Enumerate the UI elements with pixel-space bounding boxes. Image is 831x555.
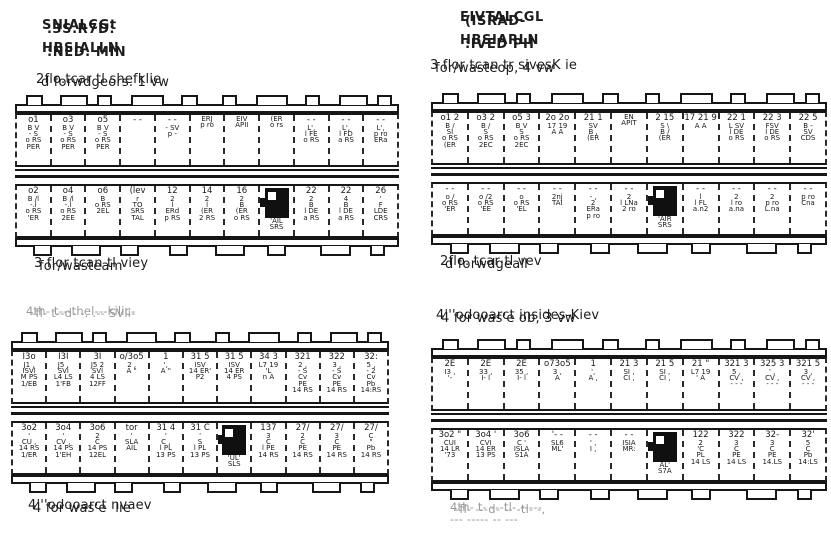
seat-cell: 31 C'Sl PL13 PS (182, 423, 216, 473)
lower-right-caption-above: 4'''odooarct insides-Kiev4 for was'e ob,… (436, 310, 599, 324)
seat-cell: 3o4'CV ,14 PS1'EH (45, 423, 79, 473)
text-line: d forwdgeors. 1 vw (41, 77, 169, 88)
seat-label-line: 14 LS (684, 459, 718, 465)
seat-cell: o73o53 ,A (538, 359, 574, 409)
coupler-tab (256, 95, 288, 105)
seat-cell: 3IJ5 2SVl4 LS12FF (79, 352, 113, 402)
seat-cell: ERJp ro (189, 115, 224, 165)
coupler-tab (645, 93, 661, 103)
coupler-tabs-bottom (434, 245, 824, 255)
seat-label-line: APIT (612, 120, 646, 126)
coupler-tabs-bottom (14, 484, 386, 494)
seat-cell: 31 4'C ,l PL13 PS (148, 423, 182, 473)
seat-label-line: p ro (576, 213, 610, 219)
aisle-divider (15, 169, 399, 184)
seat-cell: 1',A " (148, 352, 182, 402)
seat-label-line: P2 (184, 374, 216, 380)
upper-left-caption-above: 2flo.tcar tl shefklied forwdgeors. 1 vw (36, 74, 169, 88)
seat-label-line: 'ER (17, 215, 50, 221)
seat-label-line: PER (86, 144, 119, 150)
coupler-tab (450, 490, 470, 500)
seat-label-line: 14 RS (355, 452, 387, 458)
seat-cell: - -- ,2ERap ro (574, 184, 610, 234)
scanned-seatmap-page: SNIALCGt.3S.R7D:HBSIALLN:NED. MIN 2flo.t… (0, 0, 831, 555)
seat-row-upper: 2EI3 ,'-2E33 ,I- l2E35 ,I- lo73o53 ,A1',… (431, 357, 827, 411)
seat-cell: 321 35 ,CV ,- - - (718, 359, 754, 409)
seat-label-line: SLS (218, 461, 250, 467)
aisle-line (15, 169, 399, 171)
coupler-tab (539, 490, 559, 500)
coupler-tab (680, 93, 713, 103)
seat-cell: 1',A , (574, 359, 610, 409)
seat-label-line: 14 RS (287, 387, 319, 393)
seat-cell: o1B V- So RSPER (17, 115, 50, 165)
text-line: 4 for was'e ob, 3 vw (441, 313, 599, 324)
seat-cell: '- -SL6ML' (538, 430, 574, 480)
seat-cell: 22 5B -SVCDS (789, 113, 825, 163)
seat-label-line: A " (150, 368, 182, 374)
seat-label-line: - - - (720, 381, 754, 387)
seat-label-line: o RS (755, 135, 789, 141)
coupler-tab (489, 490, 520, 500)
coupler-tab (66, 483, 96, 493)
seat-label-line: a.na (720, 206, 754, 212)
seat-cell: o5 3B VSo RS2EC (503, 113, 539, 163)
seat-label-line: 2EL (86, 208, 119, 214)
seat-cell: 31 5ISV14 ER'P2 (182, 352, 216, 402)
coupler-tab (174, 332, 191, 342)
seat-label-line: PER (52, 144, 85, 150)
seat-row-lower: 3o2'CU ,14 RS1/ER3o4'CV ,14 PS1'EH3o62C1… (11, 421, 389, 475)
frame-rail-top (431, 102, 827, 111)
seat-cell: 17 21 9A A (682, 113, 718, 163)
seat-label-line: A A (540, 129, 574, 135)
coupler-tab (215, 246, 245, 256)
seat-cell: 2EI3 ,'- (433, 359, 467, 409)
seat-cell: 224Bl DEa RS (328, 186, 363, 236)
seat-label-line: 'EL (505, 206, 539, 212)
seat-label-line: A (540, 375, 574, 381)
seat-label-line: ML' (540, 446, 574, 452)
seat-cell: 1373Cl PE14 RS (250, 423, 284, 473)
seat-cell: 1222'CPL14 LS (682, 430, 718, 480)
seat-label-line: 14 RS (321, 387, 353, 393)
seat-cell: 21 3SI ,CI , (610, 359, 646, 409)
aisle-line (11, 406, 389, 408)
seat-cell: 2o 2o17 19A A (538, 113, 574, 163)
seat-label-line: TAL (121, 215, 154, 221)
seat-label-line: 12FF (81, 381, 113, 387)
upper-left-header: SNIALCGt.3S.R7D:HBSIALLN:NED. MIN (42, 20, 126, 59)
seat-cell: 'AIRSRS (646, 184, 682, 234)
seat-cell: - -oo RS'EL (503, 184, 539, 234)
seat-cell: 27/3CPE14 RS (319, 423, 353, 473)
coupler-tab (114, 483, 133, 493)
seat-label-line: A " (116, 368, 148, 374)
coupler-tab (305, 95, 320, 105)
seatmap-block-upper-right: o1 2B /SIo RS(ERo3 2B /So RS2ECo5 3B VSo… (430, 92, 828, 255)
coupler-tab (442, 93, 460, 103)
coupler-tab (55, 332, 83, 342)
seat-label-line: - - - (755, 381, 789, 387)
seat-label-line: 14 RS (287, 452, 319, 458)
coupler-tab (602, 93, 620, 103)
seatmap-block-lower-left: I3oJ1 ,ISVlM PS1/EBI3IJ5 ,SVlL4 LS1'FB3I… (10, 331, 390, 494)
seat-label-line: 14 RS (321, 452, 353, 458)
seat-label-line: CRS (364, 215, 397, 221)
seat-cell: I3oJ1 ,ISVlM PS1/EB (13, 352, 45, 402)
seat-cell: 3212 ,- SCvPE14 RS (285, 352, 319, 402)
seat-cell: - -L',p roERa (362, 115, 397, 165)
coupler-tab (26, 95, 43, 105)
seat-label-line: I- l (505, 375, 539, 381)
coupler-tabs-bottom (434, 491, 824, 501)
coupler-tab (215, 332, 230, 342)
seat-label-line: 14:RS (355, 387, 387, 393)
seat-label-line: (ER (433, 142, 467, 148)
seat-label-line: a RS (330, 137, 363, 143)
seat-cell: 31 5ISV14 ER4 PS (216, 352, 250, 402)
seat-label-line: p - (156, 131, 189, 137)
seat-cell: - -L',l FEo RS (293, 115, 328, 165)
seat-label-line: 'ER (433, 206, 467, 212)
coupler-tabs-top (18, 94, 396, 104)
coupler-tabs-top (434, 338, 824, 348)
aisle-line (431, 167, 827, 169)
coupler-tab (339, 95, 367, 105)
seatmap-block-upper-left: o1B V- So RSPERo3B V- So RSPERo5B V- So … (14, 94, 400, 257)
seat-label-line: o RS (720, 135, 754, 141)
coupler-tab (805, 93, 821, 103)
seat-label-line: CI , (612, 375, 646, 381)
seat-cell: - -p roCna (789, 184, 825, 234)
seat-row-lower: 3o2 "CUI14 LR'733o4 'CVI14 ER13 PS3o6C '… (431, 428, 827, 482)
seat-label-line: L.na (755, 206, 789, 212)
seat-cell: - -' ,I , (574, 430, 610, 480)
coupler-tabs-top (434, 92, 824, 102)
aisle-line (431, 173, 827, 176)
seat-label-line: p RS (156, 215, 189, 221)
seat-label-line: 14 LS (720, 459, 754, 465)
coupler-tab (260, 483, 279, 493)
seat-cell: 32-3CPE14.LS (753, 430, 789, 480)
seat-label-line: 14 RS (252, 452, 284, 458)
seat-label-line: (ER (576, 135, 610, 141)
seat-label-line: 13 PS (469, 452, 503, 458)
seat-label-line: a.n2 (684, 206, 718, 212)
seat-label-line: SRS (648, 222, 682, 228)
text-line: .3S.R7D: (47, 24, 126, 36)
coupler-tab (442, 339, 460, 349)
seat-label-line: 13 PS (184, 452, 216, 458)
seat-label-line: A A (684, 123, 718, 129)
seat-label-line: CI , (648, 375, 682, 381)
seat-cell: 21 "L7 19' A (682, 359, 718, 409)
seat-label-line: Cna (791, 200, 825, 206)
coupler-tab (590, 490, 610, 500)
seat-cell: 325 3' ,CV ,- - - (753, 359, 789, 409)
seat-cell: o2B /l-.lo RS'ER (17, 186, 50, 236)
seat-label-line: '73 (433, 452, 467, 458)
seat-row-upper: I3oJ1 ,ISVlM PS1/EBI3IJ5 ,SVlL4 LS1'FB3I… (11, 350, 389, 404)
coupler-tab (267, 246, 286, 256)
coupler-tab (92, 332, 107, 342)
seat-cell: (levrTOSRSTAL (119, 186, 154, 236)
seat-cell: o6Bo RS2EL (84, 186, 119, 236)
seat-cell: 27/2CPE14 RS (285, 423, 319, 473)
seat-label-line: 2 ro (612, 206, 646, 212)
seat-label-line: o rs (260, 122, 293, 128)
seat-label-line: 1/ER (13, 452, 45, 458)
coupler-tab (637, 244, 668, 254)
seat-cell: ENAPIT (610, 113, 646, 163)
seat-label-line: I- l (469, 375, 503, 381)
exit-marker (265, 188, 289, 218)
seat-label-line: ERa (364, 137, 397, 143)
coupler-tab (320, 246, 350, 256)
coupler-tab (33, 246, 52, 256)
exit-marker (653, 432, 677, 462)
seat-cell: AL'S7A (646, 430, 682, 480)
seat-label-line: o RS (225, 215, 258, 221)
seat-label-line: 1'EH (47, 452, 79, 458)
seat-cell: 3o4 'CVI14 ER13 PS (467, 430, 503, 480)
seat-cell: (ERo rs (258, 115, 293, 165)
seat-cell: - -L',l FDa RS (328, 115, 363, 165)
seat-label-line: TAI (540, 200, 574, 206)
seat-cell: o3 2B /So RS2EC (467, 113, 503, 163)
seat-cell: 3o2 "CUI14 LR'73 (433, 430, 467, 480)
coupler-tab (222, 95, 237, 105)
text-line: d forwdgeall (445, 259, 542, 270)
seat-cell: 3o6C 'ISLAS1A (503, 430, 539, 480)
coupler-tab (29, 483, 48, 493)
seat-cell: o3B V- So RSPER (50, 115, 85, 165)
seat-label-line: a RS (330, 215, 363, 221)
coupler-tab (131, 95, 163, 105)
seat-cell: - -2l LNa2 ro (610, 184, 646, 234)
seat-cell: 162B(ERo RS (223, 186, 258, 236)
seat-label-line: MR: (612, 446, 646, 452)
upper-right-caption-above: 3 flor tcan tr sivesK iefor/wasteop, 4 v… (430, 60, 577, 74)
coupler-tab (551, 93, 584, 103)
seat-label-line: S1A (505, 452, 539, 458)
coupler-tabs-bottom (18, 247, 396, 257)
seat-label-line: '- (433, 375, 467, 381)
coupler-tab (120, 246, 139, 256)
seat-label-line: 13 PS (150, 452, 182, 458)
seat-label-line: SRS (260, 224, 293, 230)
seat-cell: - -o /o RS'ER (433, 184, 467, 234)
aisle-divider (431, 167, 827, 182)
coupler-tab (590, 244, 610, 254)
seat-cell: - -o /2o RS'EE (467, 184, 503, 234)
seat-cell: 142l(ER2 RS (189, 186, 224, 236)
coupler-tab (126, 332, 158, 342)
seat-label-line: PER (17, 144, 50, 150)
text-line: :NED. MIN (47, 47, 126, 59)
seat-cell: 2 15S \B /(ER (646, 113, 682, 163)
upper-right-caption-below: 2flo. tcar tl vevd forwdgeall (440, 256, 542, 270)
aisle-divider (431, 413, 827, 428)
seat-cell: 2E35 ,I- l (503, 359, 539, 409)
seat-label-line: APII (225, 122, 258, 128)
seat-row-lower: - -o /o RS'ER- -o /2o RS'EE- -oo RS'EL- … (431, 182, 827, 236)
seat-label-line: 2 RS (191, 215, 224, 221)
seat-cell: o/3o52 ,A " (114, 352, 148, 402)
seat-label-line: 2EC (505, 142, 539, 148)
seat-row-lower: o2B /l-.lo RS'ERo4B /l-.lo RS2EEo6Bo RS2… (15, 184, 399, 238)
coupler-tab (746, 244, 777, 254)
upper-left-caption-below: 3 flor tcan tl vieyfor/wasteam (34, 258, 148, 272)
coupler-tab (370, 246, 385, 256)
seat-cell: 32'5CPb14:LS (789, 430, 825, 480)
coupler-tab (602, 339, 620, 349)
coupler-tab (97, 95, 112, 105)
coupler-tab (539, 244, 559, 254)
seat-cell: 22 1L SVl DEo RS (718, 113, 754, 163)
seat-cell: 222Bl DEa RS (293, 186, 328, 236)
seat-cell: - -2p roL.na (753, 184, 789, 234)
seat-cell: 27/C"Pb14 RS (353, 423, 387, 473)
seat-label-line: n A (252, 374, 284, 380)
seat-cell: 'UL'SLS (216, 423, 250, 473)
coupler-tab (766, 93, 795, 103)
seat-cell: 3o62C14 PS12EL (79, 423, 113, 473)
coupler-tab (450, 244, 470, 254)
coupler-tab (207, 483, 237, 493)
seat-cell: 34 3L7 19'Ln A (250, 352, 284, 402)
exit-marker (222, 425, 246, 455)
coupler-tab (797, 244, 813, 254)
seat-cell: 3o2'CU ,14 RS1/ER (13, 423, 45, 473)
seat-label-line: 14.LS (755, 459, 789, 465)
seat-cell: - -ll FLa.n2 (682, 184, 718, 234)
aisle-line (11, 412, 389, 415)
seat-label-line: 12EL (81, 452, 113, 458)
coupler-tab (516, 93, 532, 103)
seat-cell: - -ISIAMR: (610, 430, 646, 480)
seat-label-line: 2EE (52, 215, 85, 221)
seat-cell: I3IJ5 ,SVlL4 LS1'FB (45, 352, 79, 402)
lower-left-caption-above: 4th- t---thel---kilic--fl- t--d- -. .-- … (26, 306, 136, 318)
upper-right-header: EIVTALCGL(ISRAD-HBSIARLN:IVED PH (460, 12, 544, 51)
coupler-tab (766, 339, 795, 349)
seat-cell: 321 53 ,CV ,- - - (789, 359, 825, 409)
coupler-tab (730, 339, 746, 349)
coupler-tab (297, 332, 312, 342)
seat-label-line: I , (576, 446, 610, 452)
aisle-line (431, 419, 827, 422)
coupler-tab (312, 483, 342, 493)
seat-cell: o1 2B /SIo RS(ER (433, 113, 467, 163)
coupler-tab (181, 95, 198, 105)
exit-marker (653, 186, 677, 216)
coupler-tab (645, 339, 661, 349)
seat-cell: 122lERdp RS (154, 186, 189, 236)
seat-label-line: 14:LS (791, 459, 825, 465)
seat-label-line: a RS (295, 215, 328, 221)
seat-label-line: AIL (116, 445, 148, 451)
seat-cell: 3223 ,- SCvPE14 RS (319, 352, 353, 402)
seat-cell: 21 5SI ,CI , (646, 359, 682, 409)
seat-cell: 22 3FSVl DEo RS (753, 113, 789, 163)
coupler-tab (163, 483, 182, 493)
seat-label-line: ' A (684, 375, 718, 381)
seat-label-line: 1'FB (47, 381, 79, 387)
seat-cell: 32:5 ,- 2CvPb14:RS (353, 352, 387, 402)
lower-right-caption-below: 4th- t- ---tl- ------fl- ---d- -- -tl- -… (450, 502, 545, 524)
coupler-tab (680, 339, 713, 349)
coupler-tab (489, 244, 520, 254)
seat-row-upper: o1B V- So RSPERo3B V- So RSPERo5B V- So … (15, 113, 399, 167)
seat-cell: 2E33 ,I- l (467, 359, 503, 409)
aisle-line (431, 413, 827, 415)
coupler-tab (730, 93, 746, 103)
seatmap-block-lower-right: 2EI3 ,'-2E33 ,I- l2E35 ,I- lo73o53 ,A1',… (430, 338, 828, 501)
coupler-tab (637, 490, 668, 500)
frame-rail-top (431, 348, 827, 357)
coupler-tab (797, 490, 813, 500)
seat-label-line: 1/EB (13, 381, 45, 387)
seat-cell: - -2njTAI (538, 184, 574, 234)
seat-cell: o4B /l-.lo RS2EE (50, 186, 85, 236)
aisle-divider (11, 406, 389, 421)
coupler-tab (691, 490, 711, 500)
lower-left-caption-below: 4'''odooarct nvaev4 for was'e lie (28, 500, 152, 514)
seat-label-line: 'EE (469, 206, 503, 212)
seat-label-line: S7A (648, 468, 682, 474)
seat-cell: 26'FLDECRS (362, 186, 397, 236)
text-line: :IVED PH (465, 39, 544, 51)
seat-label-line: 2EC (469, 142, 503, 148)
coupler-tab (367, 332, 382, 342)
coupler-tab (21, 332, 38, 342)
coupler-tab (377, 95, 392, 105)
seat-label-line: p ro (191, 122, 224, 128)
coupler-tabs-top (14, 331, 386, 341)
coupler-tab (516, 339, 532, 349)
seat-cell: 3223CPE14 LS (718, 430, 754, 480)
seat-label-line: 4 PS (218, 374, 250, 380)
coupler-tab (330, 332, 358, 342)
coupler-tab (551, 339, 584, 349)
coupler-tab (691, 244, 711, 254)
aisle-line (15, 175, 399, 178)
coupler-tab (360, 483, 375, 493)
seat-label-line: CDS (791, 135, 825, 141)
coupler-tab (169, 246, 188, 256)
seat-cell: tor'SLAAIL (114, 423, 148, 473)
coupler-tab (805, 339, 821, 349)
seat-cell: 21 1SVB ,(ER (574, 113, 610, 163)
seat-cell: - - (119, 115, 154, 165)
seat-label-line: (ER (648, 135, 682, 141)
seat-cell: 'AILSRS (258, 186, 293, 236)
seat-label-line: o RS (295, 137, 328, 143)
seat-cell: EIVAPII (223, 115, 258, 165)
coupler-tab (60, 95, 88, 105)
seat-label-line: - - (121, 116, 154, 125)
coupler-tab (746, 490, 777, 500)
frame-rail-top (11, 341, 389, 350)
seat-cell: - -- SVp - (154, 115, 189, 165)
seat-row-upper: o1 2B /SIo RS(ERo3 2B /So RS2ECo5 3B VSo… (431, 111, 827, 165)
seat-label-line: A , (576, 375, 610, 381)
coupler-tab (477, 93, 506, 103)
seat-cell: o5B V- So RSPER (84, 115, 119, 165)
coupler-tab (248, 332, 280, 342)
